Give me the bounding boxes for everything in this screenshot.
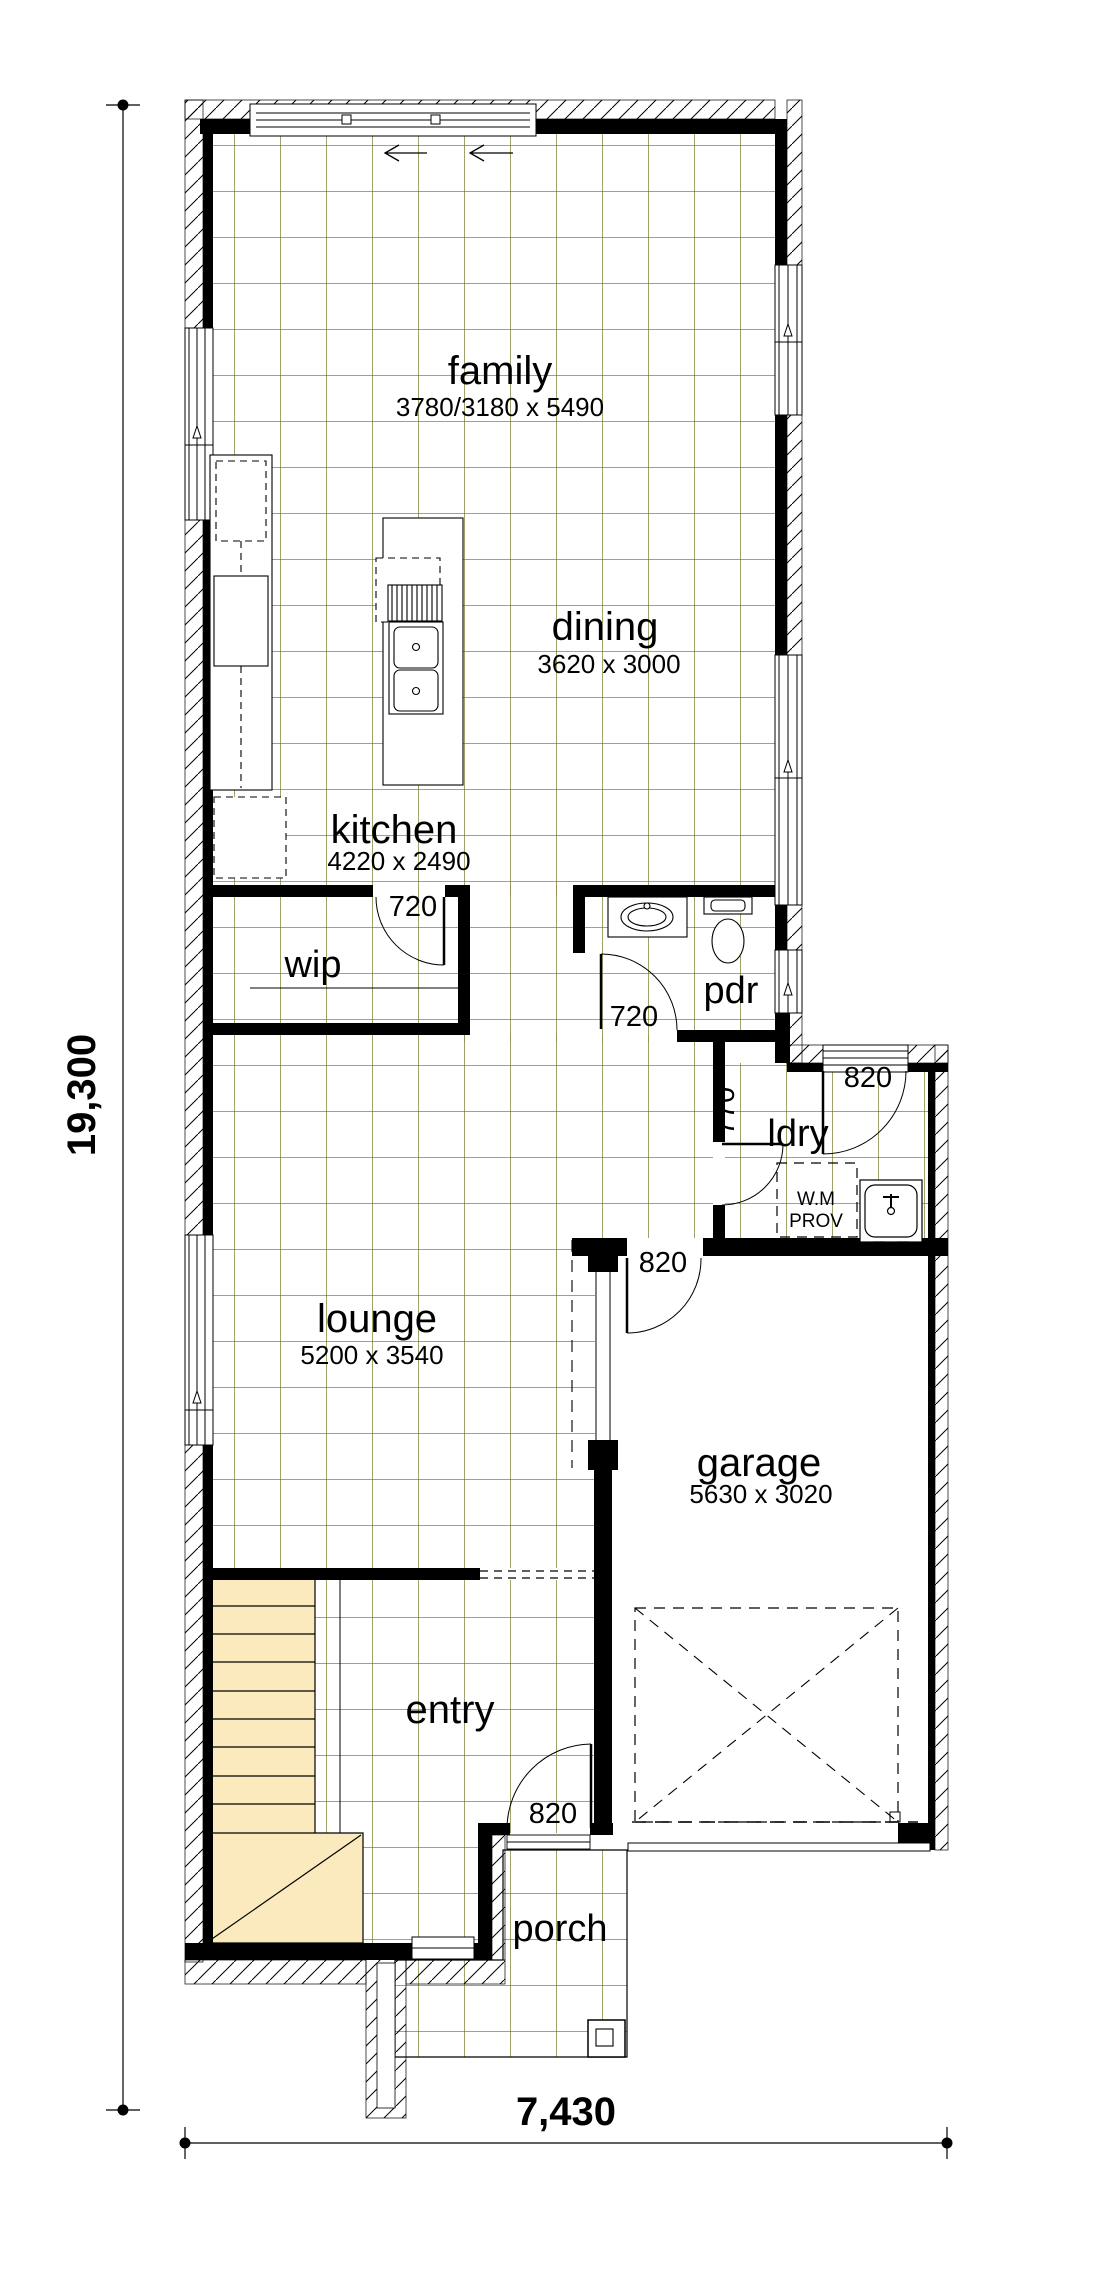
lounge-size: 5200 x 3540 (300, 1340, 443, 1370)
floor-plan-page: family 3780/3180 x 5490 dining 3620 x 30… (0, 0, 1104, 2271)
dining-label: dining (552, 605, 659, 649)
fridge-space (214, 797, 286, 878)
wip-label: wip (283, 944, 341, 986)
wm-prov-line1: W.M (797, 1189, 835, 1210)
dimension-depth (106, 100, 140, 2115)
door-720-kitchen-label: 720 (389, 891, 437, 923)
garage-wall-face-lines (596, 1272, 610, 1440)
window-right-dining (775, 655, 802, 905)
door-820-ldry-label: 820 (844, 1062, 892, 1094)
entry-label: entry (406, 1688, 495, 1732)
cooktop (388, 585, 442, 621)
door-820-front-label: 820 (529, 1798, 577, 1830)
porch-label: porch (512, 1908, 607, 1950)
window-left-family (185, 328, 213, 520)
porch-post (588, 2020, 625, 2057)
ldry-label: ldry (767, 1113, 828, 1155)
garage-items (628, 1608, 930, 1851)
window-right-pdr (775, 950, 802, 1013)
depth-dimension-label: 19,300 (60, 1034, 104, 1156)
floor-plan-drawing: family 3780/3180 x 5490 dining 3620 x 30… (0, 0, 1104, 2271)
garage-threshold (628, 1843, 930, 1851)
door-820-garage-label: 820 (639, 1247, 687, 1279)
entry-pier-channel (377, 1963, 395, 2108)
wm-prov-line2: PROV (789, 1211, 843, 1232)
kitchen-size: 4220 x 2490 (327, 846, 470, 876)
staircase (207, 1578, 363, 1943)
pdr-label: pdr (704, 970, 759, 1012)
pdr-vanity (608, 897, 687, 937)
laundry-tub (860, 1180, 922, 1247)
entry-opening-over (480, 1571, 610, 1578)
door-720-pdr-label: 720 (610, 1001, 658, 1033)
door-770-label: 770 (709, 1087, 741, 1135)
dining-size: 3620 x 3000 (537, 649, 680, 679)
tiled-floor-areas (213, 134, 928, 2057)
width-dimension-label: 7,430 (516, 2090, 616, 2134)
sliding-door-top (250, 104, 536, 136)
lounge-label: lounge (317, 1297, 437, 1341)
window-left-lounge (185, 1235, 213, 1445)
window-right-family (775, 265, 802, 415)
double-sink (389, 622, 443, 714)
family-label: family (448, 349, 552, 393)
family-size: 3780/3180 x 5490 (396, 392, 604, 422)
garage-size: 5630 x 3020 (689, 1479, 832, 1509)
